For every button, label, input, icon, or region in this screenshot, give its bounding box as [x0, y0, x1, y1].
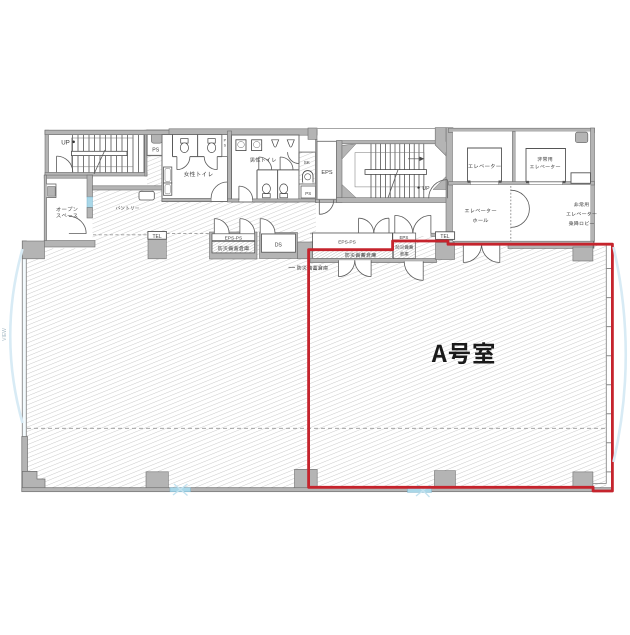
svg-text:UP: UP: [422, 186, 430, 192]
svg-text:TEL: TEL: [440, 234, 449, 240]
svg-text:EPS: EPS: [321, 170, 332, 176]
svg-text:EPS-PS: EPS-PS: [338, 240, 356, 246]
svg-text:EPS-PS: EPS-PS: [225, 235, 243, 241]
svg-text:PS: PS: [152, 148, 159, 154]
svg-text:SK: SK: [304, 160, 311, 165]
svg-text:PS: PS: [305, 191, 311, 196]
svg-text:UP: UP: [61, 140, 70, 147]
svg-text:VIEW: VIEW: [2, 328, 8, 341]
svg-text:TEL: TEL: [153, 234, 162, 240]
svg-text:DS: DS: [275, 242, 283, 248]
svg-text:EPS: EPS: [400, 235, 409, 240]
